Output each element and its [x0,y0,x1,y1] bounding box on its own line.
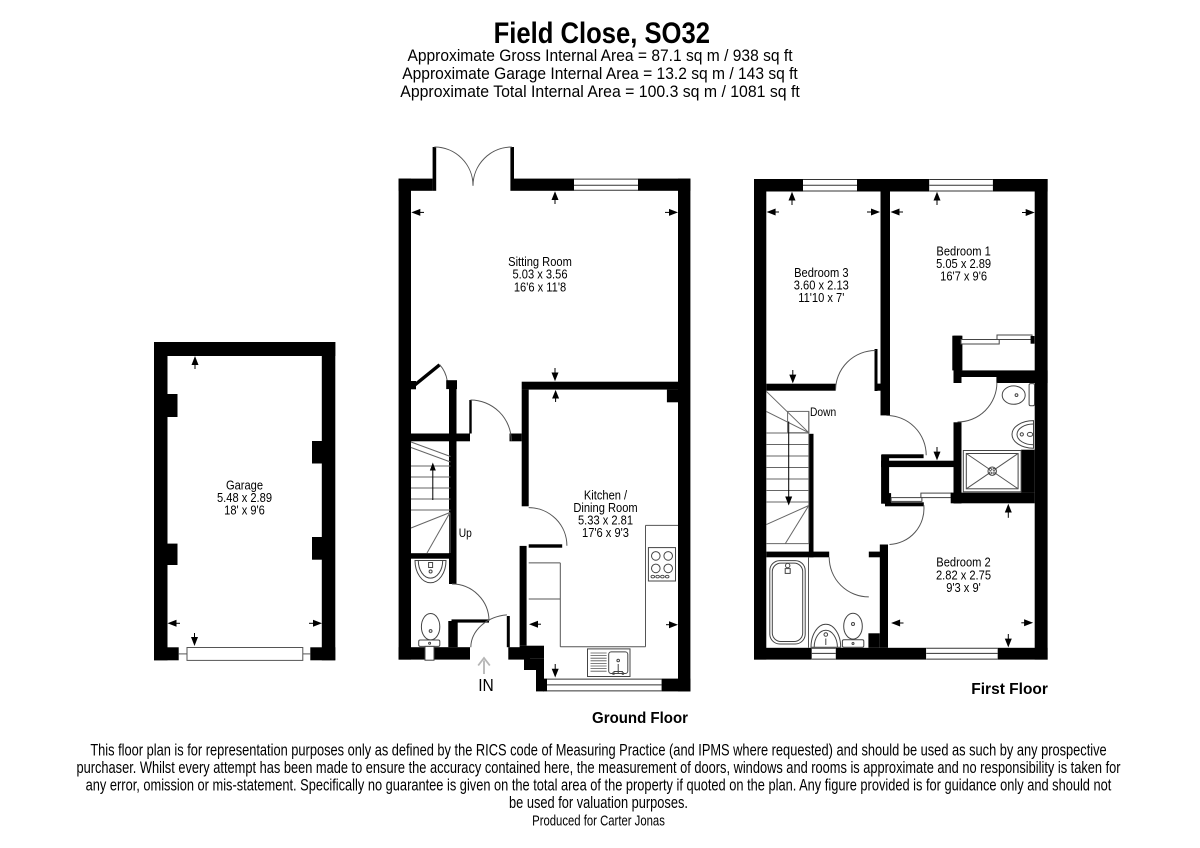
svg-text:Approximate Total Internal Are: Approximate Total Internal Area = 100.3 … [400,83,800,101]
svg-text:purchaser. Whilst every attemp: purchaser. Whilst every attempt has been… [76,758,1120,777]
svg-text:18' x 9'6: 18' x 9'6 [224,503,265,518]
svg-text:Up: Up [459,527,472,540]
svg-text:Approximate Garage Internal Ar: Approximate Garage Internal Area = 13.2 … [402,65,798,84]
svg-text:Down: Down [810,406,836,419]
svg-text:Produced for Carter Jonas: Produced for Carter Jonas [532,812,665,829]
svg-text:First Floor: First Floor [971,681,1048,698]
svg-text:This floor plan is for represe: This floor plan is for representation pu… [90,741,1106,760]
svg-text:16'6 x 11'8: 16'6 x 11'8 [514,280,567,295]
svg-text:11'10 x 7': 11'10 x 7' [798,290,844,305]
svg-text:be used for valuation purposes: be used for valuation purposes. [509,793,688,812]
svg-text:IN: IN [478,675,494,695]
svg-text:Field Close, SO32: Field Close, SO32 [494,16,710,49]
svg-text:Approximate Gross Internal Are: Approximate Gross Internal Area = 87.1 s… [407,47,793,66]
svg-text:16'7 x 9'6: 16'7 x 9'6 [940,269,987,284]
svg-text:17'6 x 9'3: 17'6 x 9'3 [582,525,629,540]
svg-text:9'3 x 9': 9'3 x 9' [946,580,981,595]
svg-text:Ground Floor: Ground Floor [592,710,688,727]
svg-text:any error, omission or mis-sta: any error, omission or mis-statement. Sp… [86,776,1112,795]
